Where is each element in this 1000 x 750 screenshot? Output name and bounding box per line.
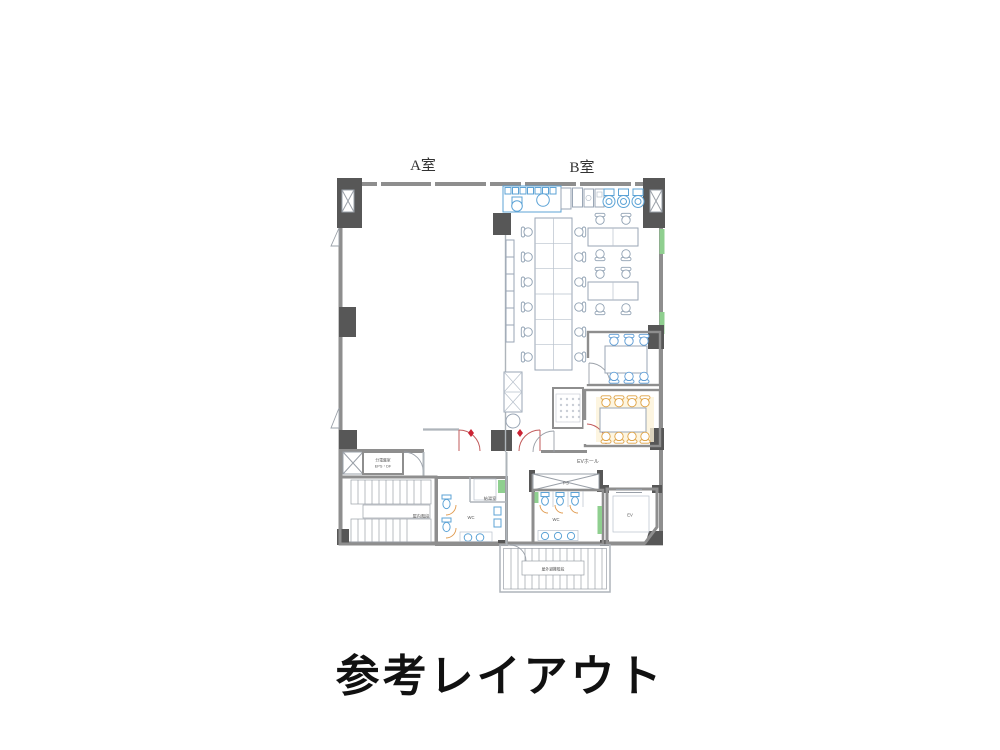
wc-right: WC bbox=[533, 490, 603, 544]
shaft-box-top-right bbox=[650, 190, 662, 212]
storage-copier-zone bbox=[504, 372, 583, 428]
pipe-shaft: PS bbox=[533, 474, 599, 490]
electrical-room-sub-label: EPS・DF bbox=[375, 465, 392, 469]
corridor bbox=[507, 452, 534, 545]
indoor-stairs-label: 屋内階段 bbox=[413, 513, 431, 520]
outdoor-stairs-label: 屋外避難階段 bbox=[542, 567, 565, 572]
kitchenette-label: 給湯室 bbox=[484, 495, 497, 502]
pantry-counter bbox=[503, 186, 644, 212]
floor-plan: 分電盤室 EPS・DF 屋内階段 bbox=[0, 0, 1000, 750]
room-b-label: B室 bbox=[569, 159, 594, 176]
kitchenette: 給湯室 bbox=[474, 479, 505, 502]
meeting-room-orange bbox=[584, 390, 661, 446]
desk-cluster-left bbox=[521, 218, 585, 370]
electrical-room: 分電盤室 EPS・DF bbox=[343, 452, 424, 477]
electrical-room-label: 分電盤室 bbox=[375, 458, 390, 463]
outdoor-stairs: 屋外避難階段 bbox=[500, 545, 610, 592]
desk-islands-right bbox=[588, 213, 638, 314]
page-title: 参考レイアウト bbox=[0, 640, 1000, 704]
left-wall-door-marks bbox=[331, 228, 339, 428]
wc-right-label: WC bbox=[553, 517, 560, 522]
shaft-box-top-left bbox=[342, 190, 354, 212]
page: 分電盤室 EPS・DF 屋内階段 bbox=[0, 0, 1000, 750]
pipe-shaft-label: PS bbox=[563, 481, 569, 486]
wc-center: WC 給湯室 bbox=[437, 477, 507, 545]
wc-center-label: WC bbox=[468, 515, 475, 520]
indoor-stairs: 屋内階段 bbox=[340, 477, 436, 544]
room-a-label: A室 bbox=[410, 157, 436, 174]
pantry-appliances bbox=[561, 188, 604, 209]
ev-hall-label: EVホール bbox=[577, 459, 599, 465]
counter-stools bbox=[603, 189, 644, 208]
entrance-doors bbox=[339, 429, 587, 452]
elevator-label: EV bbox=[627, 513, 633, 518]
elevator: EV bbox=[607, 489, 657, 543]
